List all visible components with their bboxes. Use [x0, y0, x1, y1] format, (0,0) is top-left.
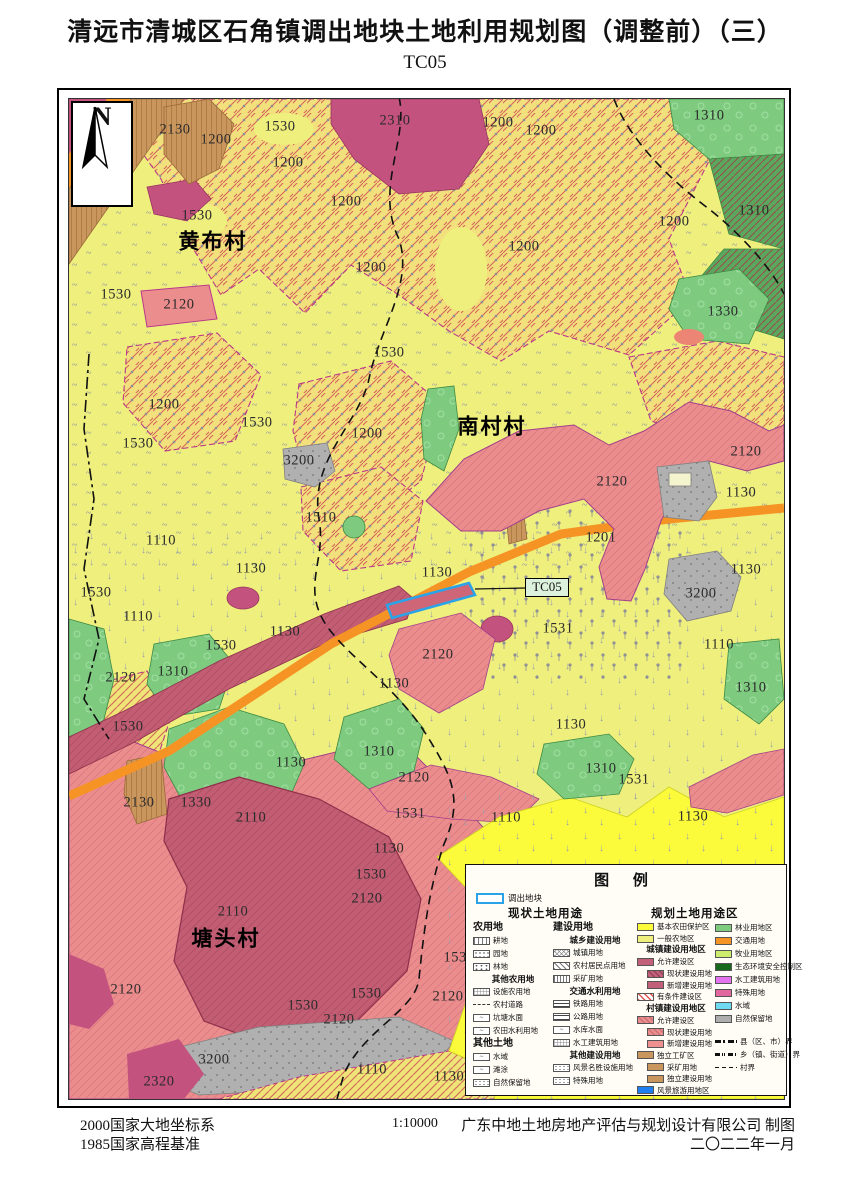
legend-item-label: 公路用地: [573, 1011, 603, 1022]
legend-item-label: 林地: [493, 961, 508, 972]
legend-item-label: 生态环境安全控制区: [735, 961, 803, 972]
legend-item-label: 滩涂: [493, 1064, 508, 1075]
legend-item-label: 一般农地区: [657, 933, 695, 944]
legend-item: 独立建设用地: [637, 1073, 715, 1085]
map-scale: 1:10000: [355, 1116, 475, 1132]
legend-swatch: [647, 1028, 664, 1036]
legend-item-label: 特殊用地: [573, 1075, 603, 1086]
village-pink-small-top: [141, 285, 217, 327]
legend-item-label: 基本农田保护区: [657, 921, 710, 932]
legend-item: 乡（镇、街道）界: [715, 1048, 785, 1061]
legend-item: 有条件建设区: [637, 991, 715, 1003]
legend-swatch: [553, 1013, 570, 1021]
legend-group-header: 其他农用地: [473, 973, 553, 985]
legend-item-label: 独立工矿区: [657, 1050, 695, 1061]
legend-item-label: 牧业用地区: [735, 948, 773, 959]
legend-swatch: [553, 975, 570, 983]
legend-item-label: 水域: [735, 1000, 750, 1011]
legend-swatch: [637, 1086, 654, 1094]
legend-swatch: [473, 988, 490, 996]
legend-item-label: 允许建设区: [657, 956, 695, 967]
legend-item-label: 坑塘水面: [493, 1012, 523, 1023]
parcel-swatch: [476, 893, 504, 904]
legend-swatch: [715, 924, 732, 932]
legend-item: ~农田水利用地: [473, 1024, 553, 1037]
legend-swatch: [637, 993, 654, 1001]
legend-swatch: [715, 937, 732, 945]
legend-item: 耕地: [473, 934, 553, 947]
legend-group-header: 其他建设用地: [553, 1049, 637, 1061]
planning-map-page: 清远市清城区石角镇调出地块土地利用规划图（调整前）（三） TC05: [0, 0, 850, 1201]
legend-swatch: [647, 1075, 664, 1083]
legend-swatch: [715, 950, 732, 958]
legend-swatch: [715, 1002, 732, 1010]
legend-item: 基本农田保护区: [637, 921, 715, 933]
legend-group-header: 城镇建设用地区: [637, 944, 715, 956]
legend-swatch: [637, 1016, 654, 1024]
legend-swatch: ~: [473, 1014, 490, 1022]
legend-item-label: 新增建设用地: [667, 1038, 712, 1049]
legend-group-header: 其他土地: [473, 1037, 553, 1050]
legend-item: 新增建设用地: [637, 1038, 715, 1050]
legend-item-label: 自然保留地: [735, 1013, 773, 1024]
legend-box: 图 例 调出地块 现状土地用途 规划土地用途区 农用地耕地园地林地其他农用地设施…: [465, 864, 787, 1096]
legend-item-label: 水库水面: [573, 1024, 603, 1035]
legend-item-label: 风景名胜设施用地: [573, 1062, 633, 1073]
legend-item-label: 水工建筑用地: [735, 974, 780, 985]
legend-item: 林业用地区: [715, 921, 785, 934]
legend-item: 村界: [715, 1061, 785, 1074]
legend-item-label: 独立建设用地: [667, 1073, 712, 1084]
legend-col-2: 建设用地城乡建设用地城镇用地农村居民点用地采矿用地交通水利用地铁路用地公路用地~…: [553, 921, 637, 1087]
legend-item: 铁路用地: [553, 997, 637, 1010]
legend-swatch: ~: [473, 1066, 490, 1074]
legend-title: 图 例: [466, 869, 786, 890]
legend-item: 采矿用地: [553, 972, 637, 985]
legend-item-label: 乡（镇、街道）界: [740, 1049, 800, 1060]
legend-swatch: [715, 963, 732, 971]
legend-col-1: 农用地耕地园地林地其他农用地设施农用地农村道路~坑塘水面~农田水利用地其他土地~…: [473, 921, 553, 1089]
legend-item: 城镇用地: [553, 946, 637, 959]
legend-group-header: 村镇建设用地区: [637, 1003, 715, 1015]
legend-item-label: 园地: [493, 948, 508, 959]
legend-item: 水工建筑用地: [715, 973, 785, 986]
legend-group-header: 农用地: [473, 921, 553, 934]
legend-current-header: 现状土地用途: [508, 905, 583, 921]
legend-item-label: 水工建筑用地: [573, 1037, 618, 1048]
height-datum: 1985国家高程基准: [80, 1133, 200, 1154]
legend-swatch: [473, 963, 490, 971]
legend-item-label: 特殊用地: [735, 987, 765, 998]
legend-item: 交通用地: [715, 934, 785, 947]
legend-swatch: [553, 949, 570, 957]
legend-item-label: 自然保留地: [493, 1077, 531, 1088]
legend-item: ~滩涂: [473, 1063, 553, 1076]
legend-group-header: 交通水利用地: [553, 985, 637, 997]
legend-swatch: [715, 989, 732, 997]
legend-item-label: 风景旅游用地区: [657, 1085, 710, 1096]
legend-item: 水域: [715, 999, 785, 1012]
legend-item: 园地: [473, 947, 553, 960]
legend-item: 公路用地: [553, 1010, 637, 1023]
legend-swatch: [637, 923, 654, 931]
legend-swatch: ~: [553, 1026, 570, 1034]
legend-item-label: 有条件建设区: [657, 991, 702, 1002]
legend-item-label: 允许建设区: [657, 1015, 695, 1026]
legend-item: 特殊用地: [715, 986, 785, 999]
map-date: 二〇二二年一月: [690, 1133, 795, 1154]
legend-swatch: [715, 1015, 732, 1023]
legend-swatch: [473, 1004, 490, 1005]
legend-swatch: [473, 1079, 490, 1087]
legend-item: 现状建设用地: [637, 968, 715, 980]
legend-item: 风景旅游用地区: [637, 1085, 715, 1097]
legend-item-label: 铁路用地: [573, 998, 603, 1009]
legend-swatch: [553, 962, 570, 970]
legend-swatch: [637, 935, 654, 943]
cartographer: 广东中地土地房地产评估与规划设计有限公司 制图: [461, 1114, 795, 1135]
small-salmon-patch: [674, 329, 704, 345]
legend-col-3: 基本农田保护区一般农地区城镇建设用地区允许建设区现状建设用地新增建设用地有条件建…: [637, 921, 715, 1096]
legend-item: 生态环境安全控制区: [715, 960, 785, 973]
geodetic-datum: 2000国家大地坐标系: [80, 1114, 215, 1135]
legend-item: 农村居民点用地: [553, 959, 637, 972]
legend-item-label: 现状建设用地: [667, 1027, 712, 1038]
legend-group-header: 建设用地: [553, 921, 637, 934]
legend-swatch: [715, 1053, 737, 1055]
legend-item-label: 采矿用地: [573, 973, 603, 984]
legend-swatch: ~: [473, 1053, 490, 1061]
legend-item-label: 县（区、市）界: [740, 1036, 793, 1047]
legend-swatch: [647, 1063, 664, 1071]
parcel-label: 调出地块: [508, 892, 542, 904]
legend-item: 允许建设区: [637, 1015, 715, 1027]
legend-item: 自然保留地: [473, 1076, 553, 1089]
legend-col-4: 林业用地区交通用地牧业用地区生态环境安全控制区水工建筑用地特殊用地水域自然保留地…: [715, 921, 785, 1074]
legend-item: ~坑塘水面: [473, 1011, 553, 1024]
legend-item: 一般农地区: [637, 933, 715, 945]
legend-item-label: 交通用地: [735, 935, 765, 946]
legend-item: 采矿用地: [637, 1061, 715, 1073]
legend-item-label: 设施农用地: [493, 986, 531, 997]
legend-item-label: 农田水利用地: [493, 1025, 538, 1036]
legend-item: ~水库水面: [553, 1023, 637, 1036]
legend-swatch: [553, 1000, 570, 1008]
legend-swatch: [553, 1064, 570, 1072]
legend-planned-header: 规划土地用途区: [651, 905, 739, 921]
legend-item: 允许建设区: [637, 956, 715, 968]
legend-item-label: 林业用地区: [735, 922, 773, 933]
legend-item: ~水域: [473, 1050, 553, 1063]
legend-swatch: [637, 958, 654, 966]
legend-swatch: [553, 1039, 570, 1047]
legend-item: 牧业用地区: [715, 947, 785, 960]
legend-parcel-item: 调出地块: [476, 892, 542, 904]
parcel-callout: TC05: [525, 578, 569, 597]
legend-item: 风景名胜设施用地: [553, 1061, 637, 1074]
legend-swatch: [715, 1040, 737, 1042]
legend-item-label: 现状建设用地: [667, 968, 712, 979]
legend-item-label: 耕地: [493, 935, 508, 946]
legend-item-label: 农村居民点用地: [573, 960, 626, 971]
north-arrow: N: [71, 101, 133, 207]
legend-swatch: [647, 981, 664, 989]
page-title: 清远市清城区石角镇调出地块土地利用规划图（调整前）（三）: [0, 12, 850, 48]
legend-item: 林地: [473, 960, 553, 973]
legend-item-label: 新增建设用地: [667, 980, 712, 991]
north-arrow-icon: [73, 103, 117, 173]
legend-swatch: [715, 976, 732, 984]
legend-item-label: 水域: [493, 1051, 508, 1062]
legend-item: 设施农用地: [473, 985, 553, 998]
legend-item: 现状建设用地: [637, 1026, 715, 1038]
legend-item: 新增建设用地: [637, 979, 715, 991]
legend-item-label: 农村道路: [493, 999, 523, 1010]
sheet-code: TC05: [0, 52, 850, 74]
legend-swatch: [473, 950, 490, 958]
legend-swatch: [553, 1077, 570, 1085]
legend-swatch: [473, 937, 490, 945]
legend-group-header: 城乡建设用地: [553, 934, 637, 946]
legend-item-label: 采矿用地: [667, 1062, 697, 1073]
legend-item: 自然保留地: [715, 1012, 785, 1025]
legend-swatch: [637, 1051, 654, 1059]
legend-swatch: [715, 1067, 737, 1069]
legend-item: 水工建筑用地: [553, 1036, 637, 1049]
legend-swatch: [647, 970, 664, 978]
legend-swatch: [647, 1040, 664, 1048]
legend-item-label: 村界: [740, 1062, 755, 1073]
legend-swatch: ~: [473, 1027, 490, 1035]
legend-item: 特殊用地: [553, 1074, 637, 1087]
legend-item: 独立工矿区: [637, 1050, 715, 1062]
legend-item: 农村道路: [473, 998, 553, 1011]
legend-item-label: 城镇用地: [573, 947, 603, 958]
legend-item: 县（区、市）界: [715, 1035, 785, 1048]
